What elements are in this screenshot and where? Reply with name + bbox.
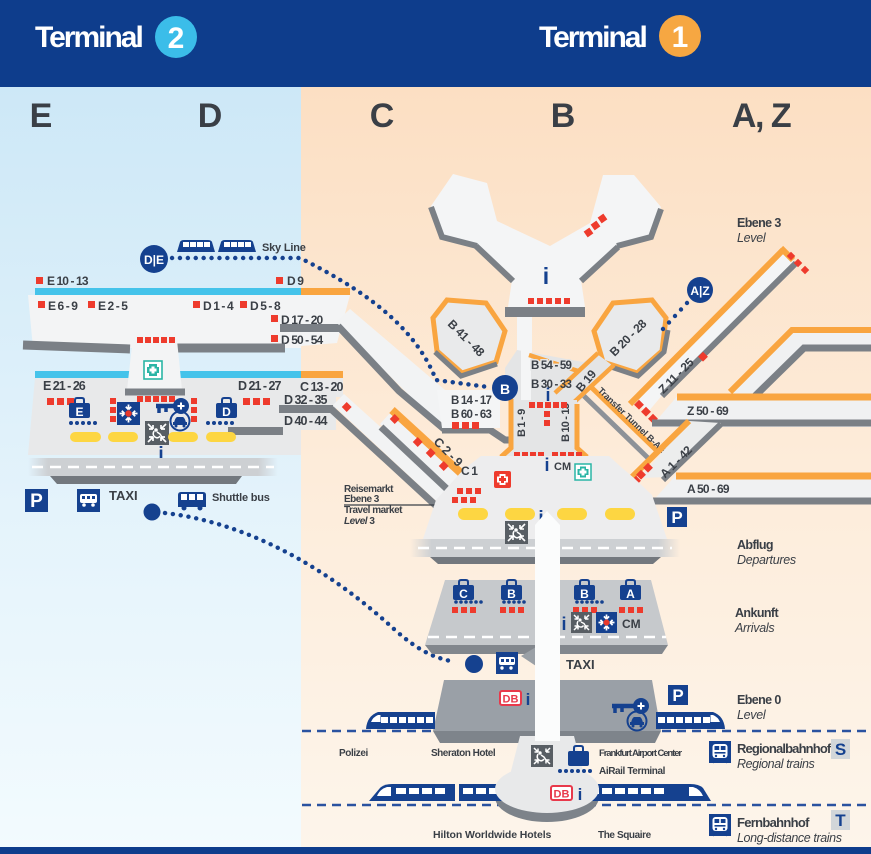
svg-text:C: C [370,97,395,135]
svg-text:Level: Level [737,231,767,245]
svg-text:P: P [671,508,682,527]
svg-text:D 21 - 27: D 21 - 27 [238,379,281,393]
svg-text:Level: Level [737,708,767,722]
svg-text:C: C [459,587,468,601]
svg-text:Arrivals: Arrivals [734,621,774,635]
svg-text:Departures: Departures [737,553,796,567]
svg-text:Shuttle bus: Shuttle bus [212,492,270,504]
svg-text:B: B [551,97,576,135]
svg-text:E: E [75,405,83,419]
svg-text:i: i [526,690,531,709]
svg-text:B 54 - 59: B 54 - 59 [531,360,572,372]
svg-text:P: P [672,686,683,705]
svg-text:CM: CM [554,461,571,473]
svg-text:The Squaire: The Squaire [598,830,652,841]
svg-text:A, Z: A, Z [732,97,791,135]
svg-text:D: D [198,97,223,135]
svg-text:C 1: C 1 [461,464,478,478]
svg-text:Ebene 3: Ebene 3 [344,494,380,505]
svg-text:Z 50 - 69: Z 50 - 69 [687,404,729,418]
svg-text:Frankfurt Airport Center: Frankfurt Airport Center [599,748,682,759]
svg-text:B 60 - 63: B 60 - 63 [451,409,492,421]
svg-text:AiRail Terminal: AiRail Terminal [599,766,666,777]
svg-text:1: 1 [672,21,689,54]
svg-text:E 21 - 26: E 21 - 26 [43,379,86,393]
svg-text:Regional trains: Regional trains [737,757,815,771]
svg-text:TAXI: TAXI [109,488,138,503]
svg-text:D 5 - 8: D 5 - 8 [250,299,281,313]
svg-text:i: i [544,455,549,475]
svg-text:Sheraton Hotel: Sheraton Hotel [431,748,496,759]
svg-text:Long-distance trains: Long-distance trains [737,831,842,845]
svg-text:A: A [626,587,635,601]
svg-text:i: i [578,785,583,804]
svg-text:TAXI: TAXI [566,657,595,672]
svg-text:B 30 - 33: B 30 - 33 [531,379,572,391]
svg-text:Fernbahnhof: Fernbahnhof [737,815,810,830]
svg-text:D 9: D 9 [287,274,304,288]
svg-text:A 50 - 69: A 50 - 69 [687,482,730,496]
svg-text:B 14 - 17: B 14 - 17 [451,395,492,407]
svg-text:D 40 - 44: D 40 - 44 [284,414,327,428]
svg-text:Ebene 0: Ebene 0 [737,693,781,707]
svg-text:2: 2 [168,22,185,55]
svg-text:D: D [222,405,231,419]
svg-text:Terminal: Terminal [539,21,646,54]
svg-text:Abflug: Abflug [737,538,773,552]
svg-text:DB: DB [503,694,519,706]
svg-text:Polizei: Polizei [339,748,368,759]
svg-text:C 13 - 20: C 13 - 20 [300,380,343,394]
svg-text:S: S [835,740,846,759]
svg-text:D 32 - 35: D 32 - 35 [284,393,327,407]
svg-text:E 2 - 5: E 2 - 5 [98,299,128,313]
svg-text:Level 3: Level 3 [344,516,375,527]
svg-text:B: B [580,587,589,601]
svg-text:B: B [500,381,510,397]
svg-text:D 50 - 54: D 50 - 54 [281,333,323,347]
svg-text:i: i [561,614,566,634]
svg-text:E 6 - 9: E 6 - 9 [48,299,78,313]
svg-text:Sky Line: Sky Line [262,242,306,254]
svg-text:CM: CM [622,617,641,631]
svg-text:Ankunft: Ankunft [735,606,779,620]
svg-text:Ebene 3: Ebene 3 [737,216,781,230]
svg-text:Hilton Worldwide Hotels: Hilton Worldwide Hotels [433,829,552,841]
svg-text:T: T [835,811,846,830]
svg-text:D 1 - 4: D 1 - 4 [203,299,234,313]
svg-text:E 10 - 13: E 10 - 13 [47,274,89,288]
svg-text:i: i [543,263,549,289]
svg-text:Travel market: Travel market [344,505,403,516]
svg-text:A|Z: A|Z [690,284,709,298]
svg-text:DB: DB [554,789,570,801]
svg-text:Regionalbahnhof: Regionalbahnhof [737,741,832,756]
svg-text:E: E [30,97,53,135]
svg-text:P: P [30,491,43,512]
svg-text:D|E: D|E [144,253,164,267]
svg-text:B: B [507,587,516,601]
svg-text:Terminal: Terminal [35,21,142,54]
svg-text:B 1 - 9: B 1 - 9 [516,409,528,437]
svg-text:B 10 - 13: B 10 - 13 [560,403,572,442]
